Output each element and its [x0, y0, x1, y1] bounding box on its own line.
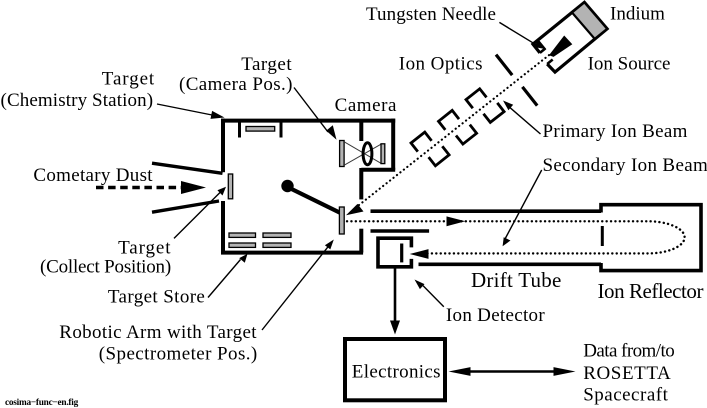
svg-text:Spacecraft: Spacecraft	[583, 385, 668, 406]
svg-text:Target Store: Target Store	[108, 287, 205, 308]
svg-text:Ion Source: Ion Source	[588, 53, 671, 74]
svg-text:(Camera Pos.): (Camera Pos.)	[179, 74, 293, 95]
svg-text:Indium: Indium	[610, 4, 665, 25]
svg-text:(Chemistry Station): (Chemistry Station)	[1, 90, 154, 111]
svg-text:Ion Optics: Ion Optics	[399, 53, 483, 74]
svg-text:Ion Reflector: Ion Reflector	[598, 279, 704, 303]
svg-text:(Collect Position): (Collect Position)	[40, 257, 171, 278]
svg-text:Target: Target	[118, 238, 171, 259]
svg-text:cosima−func−en.fig: cosima−func−en.fig	[5, 398, 79, 408]
svg-text:Camera: Camera	[335, 95, 397, 116]
svg-text:Secondary Ion Beam: Secondary Ion Beam	[543, 155, 707, 176]
svg-text:Target: Target	[241, 54, 292, 75]
svg-text:Robotic Arm with Target: Robotic Arm with Target	[59, 322, 257, 343]
svg-text:Primary Ion Beam: Primary Ion Beam	[543, 121, 688, 142]
svg-text:Drift Tube: Drift Tube	[471, 268, 562, 292]
svg-text:(Spectrometer Pos.): (Spectrometer Pos.)	[99, 344, 258, 365]
svg-text:Target: Target	[102, 68, 155, 89]
svg-text:Tungsten Needle: Tungsten Needle	[366, 4, 496, 25]
svg-text:Electronics: Electronics	[352, 362, 441, 383]
svg-text:ROSETTA: ROSETTA	[583, 363, 671, 384]
svg-text:Data from/to: Data from/to	[583, 341, 674, 362]
svg-text:Ion Detector: Ion Detector	[446, 305, 545, 326]
svg-text:Cometary Dust: Cometary Dust	[33, 165, 153, 186]
